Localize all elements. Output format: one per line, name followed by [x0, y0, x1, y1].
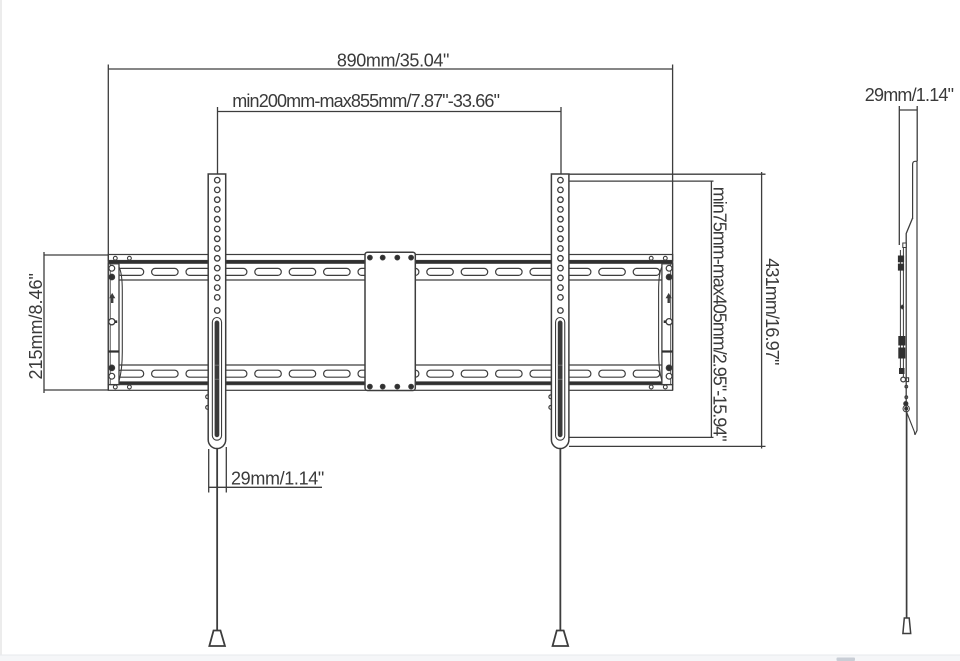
svg-text:29mm/1.14": 29mm/1.14": [231, 469, 324, 489]
svg-text:890mm/35.04": 890mm/35.04": [337, 51, 449, 71]
svg-text:min200mm-max855mm/7.87"-33.66": min200mm-max855mm/7.87"-33.66": [232, 91, 499, 111]
svg-text:29mm/1.14": 29mm/1.14": [865, 85, 954, 105]
svg-text:min75mm-max405mm/2.95"-15.94": min75mm-max405mm/2.95"-15.94": [710, 187, 730, 441]
svg-text:215mm/8.46": 215mm/8.46": [26, 273, 46, 379]
svg-text:431mm/16.97": 431mm/16.97": [762, 258, 782, 365]
